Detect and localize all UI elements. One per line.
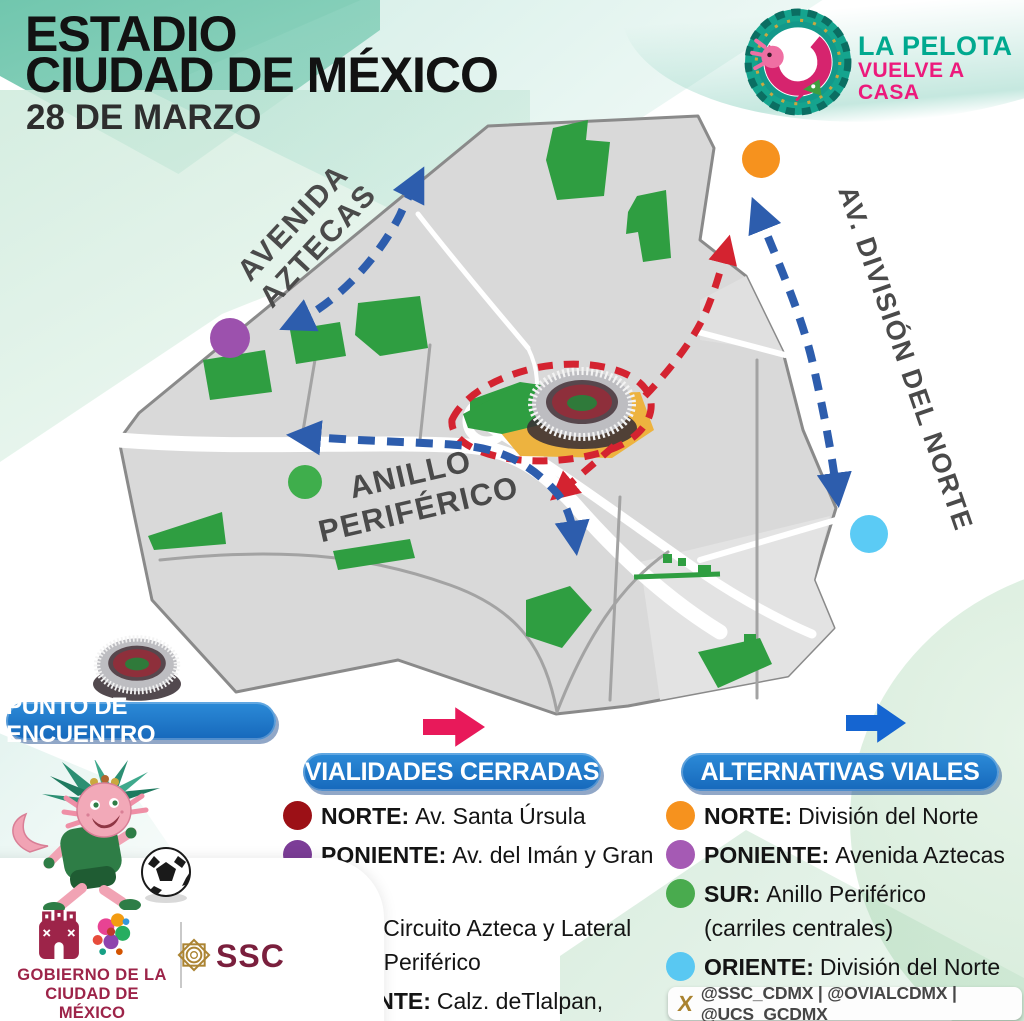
alternative-roads: División del Norte (798, 803, 978, 829)
alternative-bullet-poniente (666, 840, 695, 869)
government-line2: CIUDAD DE MÉXICO (12, 985, 172, 1021)
closure-direction: NORTE: (321, 803, 409, 829)
closure-roads: Av. Santa Úrsula (415, 803, 585, 829)
alternative-direction: NORTE: (704, 803, 792, 829)
mascot-axolotl-illustration (2, 760, 207, 910)
page-title: ESTADIO CIUDAD DE MÉXICO (25, 14, 498, 96)
alternative-item-poniente: PONIENTE:Avenida Aztecas (666, 838, 1016, 872)
closures-title: VIALIDADES CERRADAS (305, 758, 599, 787)
closure-item-norte: NORTE:Av. Santa Úrsula (283, 799, 655, 833)
gobierno-castle-crest (36, 908, 82, 964)
alternative-roads: Avenida Aztecas (835, 842, 1005, 868)
road-label-division-del-norte: AV. DIVISIÓN DEL NORTE (832, 182, 979, 535)
cdmx-colorful-crest (86, 904, 136, 966)
ssc-badge-icon (174, 934, 214, 976)
alternative-direction: PONIENTE: (704, 842, 829, 868)
closures-title-pill: VIALIDADES CERRADAS (303, 753, 601, 791)
alternatives-legend: NORTE:División del Norte PONIENTE:Avenid… (666, 799, 1016, 989)
government-wordmark: GOBIERNO DE LA CIUDAD DE MÉXICO CAPITAL … (12, 966, 172, 1021)
meeting-point-pill: PUNTO DE ENCUENTRO (6, 702, 276, 740)
social-handles-bar: X @SSC_CDMX | @OVIALCDMX | @UCS_GCDMX (668, 987, 1022, 1020)
brand-tagline-line1: LA PELOTA (858, 32, 1024, 60)
x-twitter-icon: X (676, 991, 694, 1017)
social-handles-text: @SSC_CDMX | @OVIALCDMX | @UCS_GCDMX (701, 983, 1012, 1021)
alternative-direction: ORIENTE: (704, 954, 814, 980)
ssc-wordmark: SSC (216, 938, 285, 975)
alternative-item-norte: NORTE:División del Norte (666, 799, 1016, 833)
alternatives-title-pill: ALTERNATIVAS VIALES (681, 753, 999, 791)
closure-bullet-norte (283, 801, 312, 830)
alternative-item-sur: SUR:Anillo Periférico (carriles centrale… (666, 877, 1016, 945)
alternative-bullet-sur (666, 879, 695, 908)
marker-oriente (850, 515, 888, 553)
government-line1: GOBIERNO DE LA (12, 966, 172, 985)
meeting-point-label: PUNTO DE ENCUENTRO (6, 693, 276, 749)
la-pelota-emblem (742, 6, 854, 118)
title-line2: CIUDAD DE MÉXICO (25, 55, 498, 96)
alternatives-title: ALTERNATIVAS VIALES (700, 758, 979, 787)
marker-norte (742, 140, 780, 178)
alternative-direction: SUR: (704, 881, 760, 907)
infographic-canvas: AVENIDA AZTECAS AV. DIVISIÓN DEL NORTE A… (0, 0, 1024, 1021)
alternative-bullet-oriente (666, 952, 695, 981)
event-date: 28 DE MARZO (26, 98, 261, 138)
meeting-point-stadium-icon (93, 638, 181, 700)
alternative-item-oriente: ORIENTE:División del Norte (666, 950, 1016, 984)
marker-poniente (210, 318, 250, 358)
alternative-bullet-norte (666, 801, 695, 830)
marker-sur (288, 465, 322, 499)
brand-tagline-line2: VUELVE A CASA (858, 60, 1024, 104)
brand-tagline: LA PELOTA VUELVE A CASA (858, 32, 1024, 104)
alternative-roads: División del Norte (820, 954, 1000, 980)
